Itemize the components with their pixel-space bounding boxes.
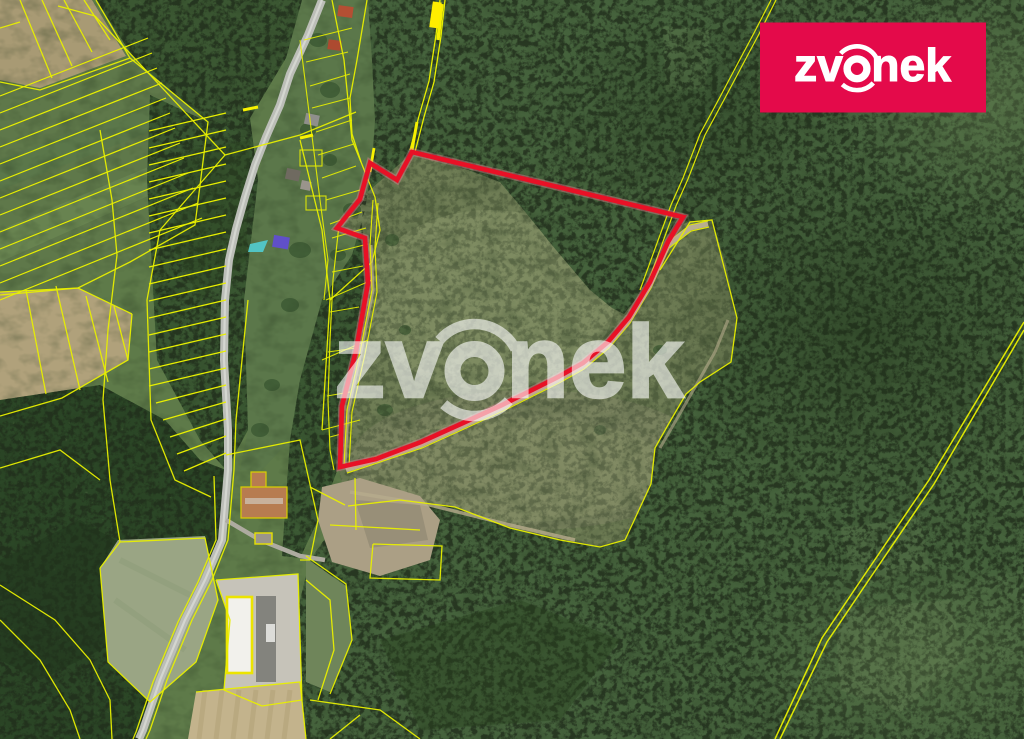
svg-text:zv: zv (334, 304, 443, 419)
svg-text:nek: nek (506, 304, 684, 419)
svg-text:nek: nek (871, 39, 951, 91)
svg-text:zv: zv (794, 39, 843, 91)
